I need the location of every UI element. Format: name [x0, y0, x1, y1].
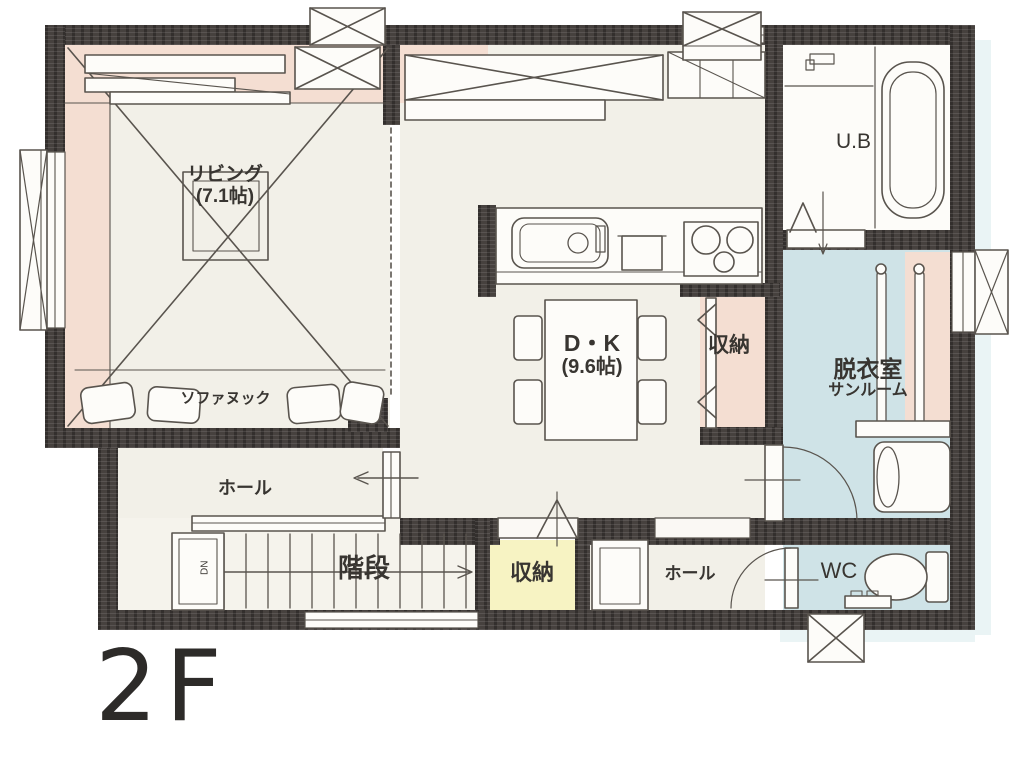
floor-plan-2f: リビング (7.1帖) ソファヌック D・K (9.6帖) 収納 U.B 脱衣室…	[0, 0, 1024, 771]
window-left	[45, 152, 65, 328]
living-room-area: (7.1帖)	[150, 186, 300, 208]
hall-lower-label: ホール	[662, 564, 718, 584]
dk-name: D・K	[564, 330, 620, 356]
dk-label: D・K (9.6帖)	[528, 330, 656, 379]
stairs-label: 階段	[324, 554, 404, 584]
storage-lower-label: 収納	[496, 560, 568, 585]
window-bottom	[305, 612, 478, 628]
unit-bath-folding-door	[787, 192, 865, 254]
exterior-box-right	[975, 250, 1008, 334]
floor-number-label: 2F	[95, 630, 230, 744]
living-void-cross-icon	[65, 48, 390, 428]
exterior-box-top-left	[310, 8, 385, 45]
laundry-poles	[856, 264, 950, 437]
living-room-name: リビング	[187, 164, 263, 185]
wc-door	[731, 548, 818, 608]
hall-upper-label: ホール	[214, 478, 276, 499]
washing-machine	[874, 442, 950, 512]
sofa-nook-label: ソファヌック	[158, 390, 293, 407]
dressing-room-label: 脱衣室 サンルーム	[808, 356, 928, 401]
dressing-room-name: 脱衣室	[834, 356, 903, 382]
unit-bath-label: U.B	[826, 130, 881, 154]
wc-label: WC	[816, 558, 862, 583]
storage-lower-folding-door	[498, 492, 578, 546]
window-right	[952, 252, 975, 332]
hall-dk-sliding-door	[354, 452, 418, 518]
dressing-room-door	[745, 445, 857, 521]
dk-closet-doors	[698, 298, 716, 428]
living-top-cabinet	[85, 47, 380, 104]
exterior-box-wc	[808, 614, 864, 662]
kitchen-counter	[496, 208, 762, 284]
exterior-box-left	[20, 150, 47, 330]
exterior-box-top-right	[683, 12, 761, 60]
stairs-dn-label: DN	[199, 553, 211, 583]
living-room-label: リビング (7.1帖)	[150, 164, 300, 208]
sunroom-name: サンルーム	[808, 382, 928, 400]
dk-area: (9.6帖)	[528, 356, 656, 379]
stairs-side-cabinet	[172, 533, 224, 610]
dk-top-closet	[405, 52, 765, 120]
dk-closet-label: 収納	[694, 334, 764, 358]
